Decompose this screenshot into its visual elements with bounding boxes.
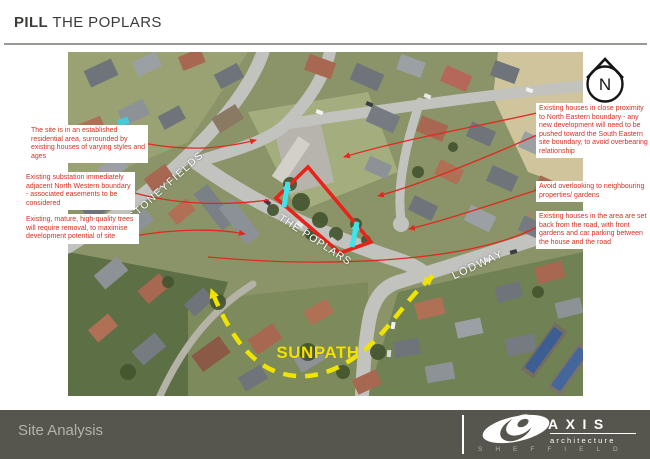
brand-underline — [550, 433, 636, 434]
annotation-substation: Existing substation immediately adjacent… — [23, 172, 135, 210]
annotation-trees: Existing, mature, high-quality trees wil… — [23, 214, 139, 244]
page-title-project: PILL — [14, 14, 48, 31]
page-title-site: THE POPLARS — [52, 14, 161, 31]
north-arrow-icon: N — [578, 54, 632, 108]
footer-bar: Site Analysis AXIS architecture SHEFFIEL… — [0, 410, 650, 459]
sunpath-label: SUNPATH — [276, 343, 359, 363]
brand-subtitle: architecture — [550, 436, 616, 445]
axis-logo-icon — [476, 412, 556, 448]
annotation-ne-houses: Existing houses in close proximity to No… — [536, 103, 650, 158]
north-letter: N — [599, 75, 611, 94]
brand-city: SHEFFIELD — [478, 446, 631, 453]
header-rule — [4, 43, 647, 45]
annotation-site-context: The site is in an established residentia… — [28, 125, 148, 163]
page-title: PILL THE POPLARS — [14, 14, 162, 31]
sheet-title: Site Analysis — [18, 422, 103, 439]
annotation-setback-houses: Existing houses in the area are set back… — [536, 211, 650, 249]
logo-divider — [462, 415, 464, 454]
site-analysis-sheet: PILL THE POPLARS — [0, 0, 650, 459]
annotation-overlooking: Avoid overlooking to neighbouring proper… — [536, 181, 650, 202]
brand-name: AXIS — [548, 416, 648, 432]
